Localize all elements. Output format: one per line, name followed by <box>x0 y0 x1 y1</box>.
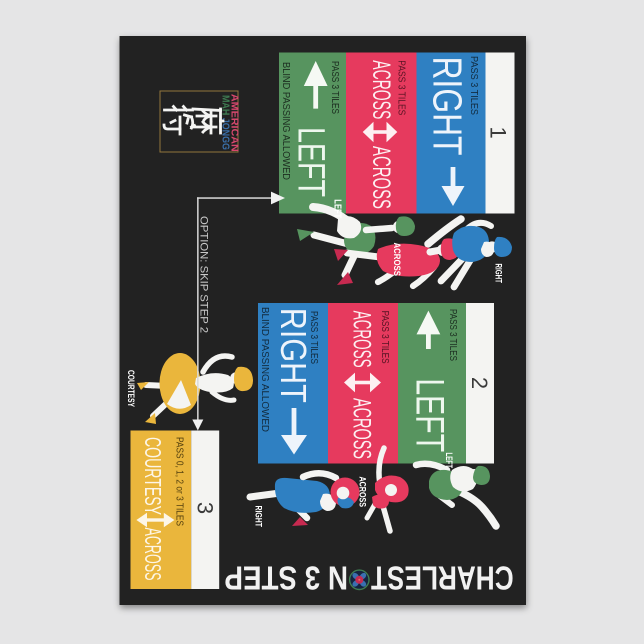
svg-text:COURTESY: COURTESY <box>126 370 136 407</box>
svg-text:1: 1 <box>486 126 511 138</box>
svg-text:PASS 3 TILES: PASS 3 TILES <box>447 309 459 361</box>
svg-text:RIGHT: RIGHT <box>425 57 471 156</box>
svg-text:ACROSS: ACROSS <box>367 60 395 119</box>
svg-text:RIGHT: RIGHT <box>494 264 504 284</box>
svg-text:RIGHT: RIGHT <box>253 506 264 528</box>
svg-text:COURTESY: COURTESY <box>140 437 166 515</box>
svg-text:LEFT: LEFT <box>290 127 332 197</box>
svg-text:ACROSS: ACROSS <box>358 477 368 508</box>
svg-text:PASS 3 TILES: PASS 3 TILES <box>308 311 320 364</box>
svg-text:PASS 3 TILES: PASS 3 TILES <box>329 61 341 114</box>
svg-text:ACROSS: ACROSS <box>367 146 395 209</box>
svg-text:PASS 3 TILES: PASS 3 TILES <box>396 60 408 115</box>
svg-text:N 3 STEP: N 3 STEP <box>225 559 349 596</box>
svg-text:LEFT: LEFT <box>443 453 454 469</box>
svg-text:PASS 0, 1, 2 or 3 TILES: PASS 0, 1, 2 or 3 TILES <box>174 437 186 526</box>
svg-text:ACROSS: ACROSS <box>392 243 402 277</box>
svg-text:PASS 3 TILES: PASS 3 TILES <box>379 311 391 364</box>
svg-text:PASS 3 TILES: PASS 3 TILES <box>468 56 480 115</box>
svg-text:OPTION: SKIP STEP 2: OPTION: SKIP STEP 2 <box>198 216 210 333</box>
svg-text:LEFT: LEFT <box>408 378 452 452</box>
svg-text:3: 3 <box>193 502 218 514</box>
svg-text:ACROSS: ACROSS <box>348 398 376 459</box>
svg-text:RIGHT: RIGHT <box>273 308 314 403</box>
svg-text:ACROSS: ACROSS <box>347 311 375 368</box>
svg-text:LEFT: LEFT <box>332 199 343 218</box>
svg-text:CHARLEST: CHARLEST <box>371 559 514 596</box>
svg-text:2: 2 <box>467 377 492 389</box>
svg-text:BLIND PASSING ALLOWED: BLIND PASSING ALLOWED <box>259 307 271 432</box>
svg-text:ACROSS: ACROSS <box>140 528 166 581</box>
